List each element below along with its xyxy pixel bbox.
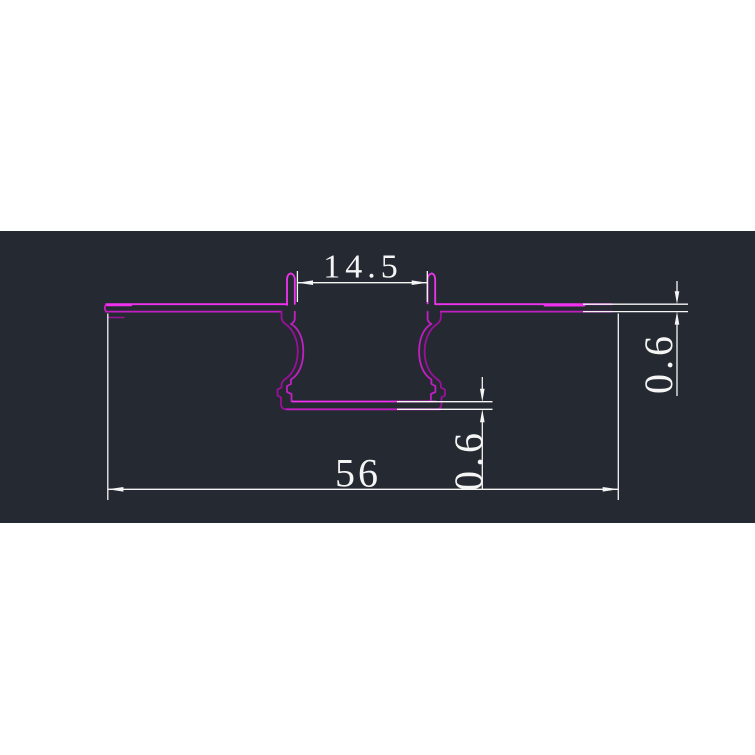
cad-drawing: 14.5 56 0.6 0.6 [0,0,755,755]
dim-label-overall: 56 [335,451,381,496]
dim-label-web: 0.6 [446,429,491,491]
cad-viewport: 14.5 56 0.6 0.6 [0,0,755,755]
dim-label-opening: 14.5 [323,249,403,286]
dim-label-flange: 0.6 [636,332,681,394]
